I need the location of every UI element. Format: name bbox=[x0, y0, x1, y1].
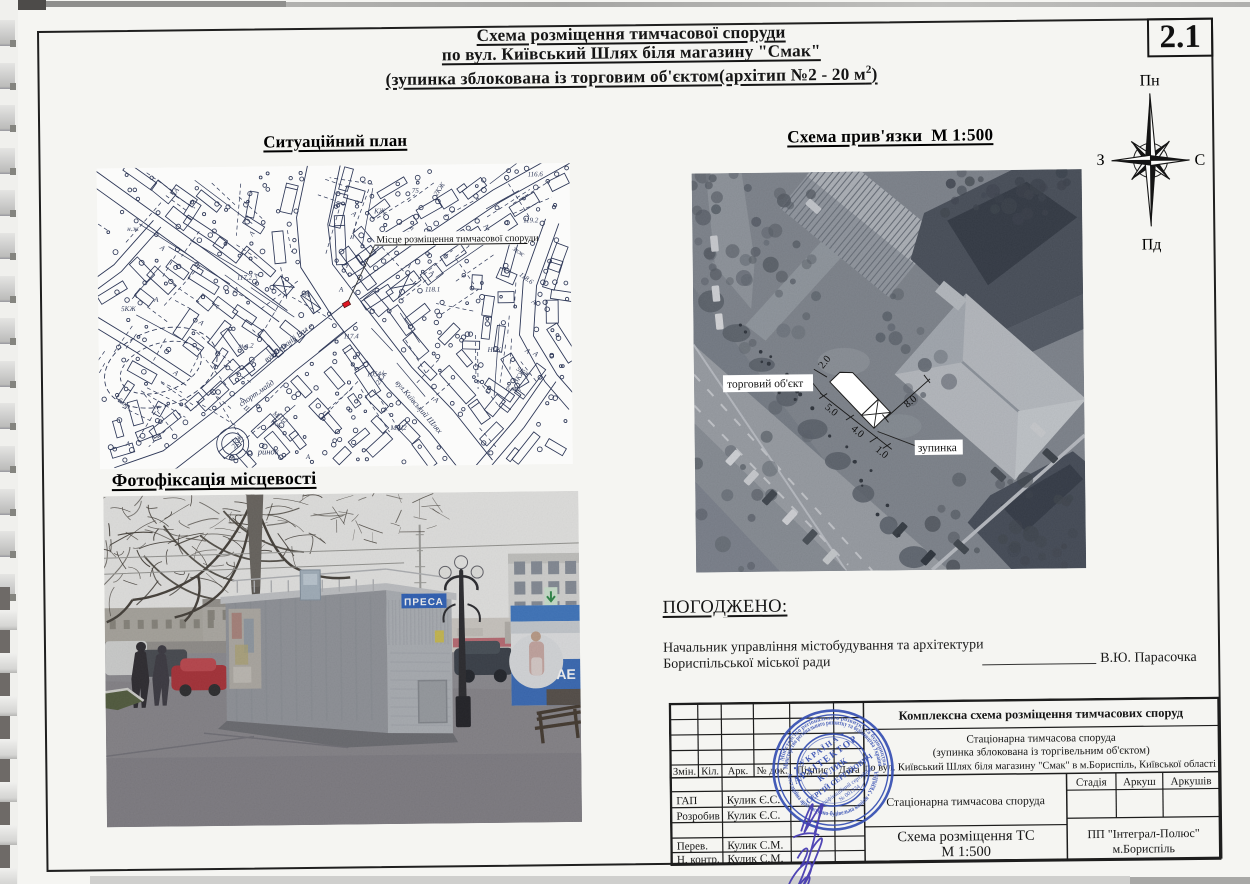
svg-text:зупинка: зупинка bbox=[918, 442, 957, 454]
svg-text:Кіл.: Кіл. bbox=[701, 767, 719, 778]
svg-text:Змін.: Змін. bbox=[673, 767, 696, 778]
svg-text:(зупинка зблокована із торгіве: (зупинка зблокована із торгівельним об'є… bbox=[933, 745, 1151, 759]
svg-text:КЖ: КЖ bbox=[373, 207, 386, 215]
svg-text:торговий об'єкт: торговий об'єкт bbox=[727, 378, 803, 391]
svg-text:116.6: 116.6 bbox=[528, 170, 544, 178]
svg-text:Комплексна схема розміщення ти: Комплексна схема розміщення тимчасових с… bbox=[899, 706, 1184, 723]
svg-text:Розробив: Розробив bbox=[676, 811, 720, 823]
svg-text:А: А bbox=[125, 440, 131, 448]
svg-text:н.ж: н.ж bbox=[127, 225, 139, 233]
svg-text:А: А bbox=[304, 291, 310, 299]
svg-text:м.а.2: м.а.2 bbox=[238, 342, 255, 350]
svg-text:М 1:500: М 1:500 bbox=[941, 844, 991, 861]
svg-text:Стаціонарна тимчасова споруда: Стаціонарна тимчасова споруда bbox=[966, 732, 1116, 746]
svg-text:С: С bbox=[1194, 152, 1205, 169]
svg-text:А: А bbox=[132, 292, 138, 300]
svg-text:119.2: 119.2 bbox=[523, 216, 539, 224]
svg-text:Аркуш: Аркуш bbox=[1123, 776, 1156, 788]
svg-text:Пн: Пн bbox=[1139, 72, 1160, 89]
svg-text:А: А bbox=[338, 286, 344, 294]
svg-text:Пд: Пд bbox=[1142, 236, 1162, 253]
svg-text:75: 75 bbox=[412, 187, 420, 195]
svg-text:ГАП: ГАП bbox=[676, 795, 697, 807]
svg-text:1054: 1054 bbox=[367, 370, 382, 378]
svg-text:б.тр.: б.тр. bbox=[506, 385, 522, 393]
svg-text:118.1: 118.1 bbox=[425, 285, 440, 293]
svg-text:117.2: 117.2 bbox=[237, 274, 253, 282]
svg-text:Стадія: Стадія bbox=[1076, 777, 1107, 789]
svg-text:Н.Ж: Н.Ж bbox=[487, 346, 502, 354]
svg-text:М.Ц2: М.Ц2 bbox=[389, 424, 407, 432]
svg-text:5КЖ: 5КЖ bbox=[121, 305, 136, 313]
svg-text:Н. контр.: Н. контр. bbox=[677, 854, 720, 866]
svg-text:Перев.: Перев. bbox=[677, 841, 709, 853]
svg-text:А: А bbox=[305, 453, 311, 461]
svg-text:А: А bbox=[233, 286, 239, 294]
svg-text:ринок: ринок bbox=[257, 446, 280, 456]
svg-text:Арк.: Арк. bbox=[728, 766, 749, 777]
svg-text:З: З bbox=[1096, 152, 1104, 169]
svg-text:117.4: 117.4 bbox=[343, 332, 359, 340]
svg-text:ПП "Інтеграл-Полюс": ПП "Інтеграл-Полюс" bbox=[1087, 826, 1199, 841]
svg-text:А: А bbox=[153, 296, 159, 304]
svg-text:Аркушів: Аркушів bbox=[1171, 776, 1212, 788]
svg-text:м.Бориспіль: м.Бориспіль bbox=[1112, 841, 1175, 856]
